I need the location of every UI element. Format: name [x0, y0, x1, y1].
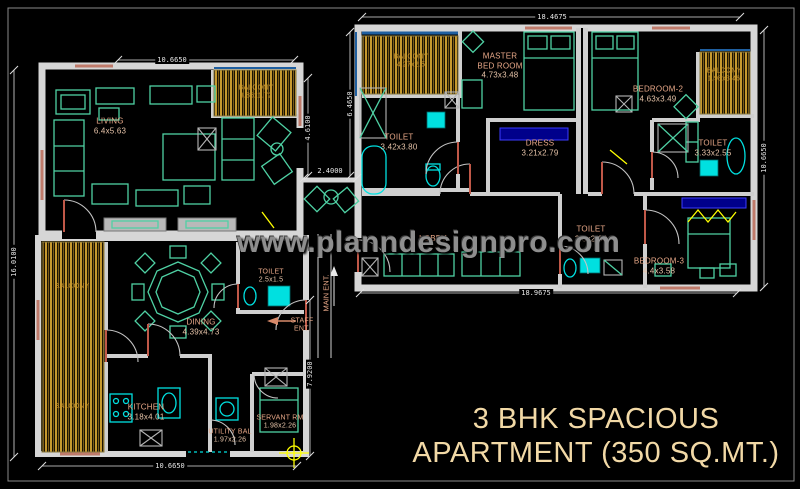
- living-storage: [104, 218, 236, 231]
- floorplan-canvas: LIVING 6.4x5.63 BALCONY 3.86x1.72 BALCON…: [0, 0, 800, 489]
- dim-left-total-height: 16.0100: [10, 245, 18, 279]
- room-label-living-balcony: BALCONY 3.86x1.72: [239, 85, 274, 102]
- room-label-side-balcony-lower: BALCONY: [55, 403, 90, 411]
- room-label-servant-room: SERVANT RM 1.98x2.26: [256, 415, 303, 432]
- dim-upper-block-left-height: 6.4650: [346, 89, 354, 118]
- master-cabinet: [462, 80, 482, 108]
- dim-lower-block-right-height: 7.9200: [306, 359, 314, 388]
- watermark-text: www.planndesignpro.com: [237, 226, 620, 260]
- room-label-dining: DINING 4.39x4.73: [183, 317, 220, 336]
- room-label-utility-balcony: UTILITY BAL 1.97x2.26: [208, 429, 251, 446]
- master-bed: [524, 32, 574, 110]
- master-decor-diamond: [462, 31, 483, 52]
- room-label-bedroom3: BEDROOM-3 4.4x3.58: [634, 256, 684, 275]
- room-label-bedroom2: BEDROOM-2 4.63x3.49: [633, 84, 683, 103]
- dim-lower-block-width: 10.6650: [153, 462, 187, 470]
- courtyard-seats: [304, 186, 358, 212]
- dining-toilet-fixtures: [244, 286, 290, 306]
- bedroom2-bed: [592, 32, 638, 110]
- room-label-master-bedroom: MASTER BED ROOM 4.73x3.48: [474, 52, 526, 81]
- room-label-bedroom2-toilet: TOILET 3.33x2.55: [695, 138, 732, 157]
- room-label-living: LIVING 6.4x5.63: [94, 116, 126, 135]
- room-label-dining-toilet: TOILET 2.5x1.5: [258, 269, 284, 286]
- room-label-side-balcony-upper: BALCONY: [55, 283, 90, 291]
- dim-living-width: 10.6650: [155, 56, 189, 64]
- drawing-title: 3 BHK SPACIOUS APARTMENT (350 SQ.MT.): [400, 402, 792, 470]
- bedroom3-toilet-fixtures: [564, 258, 622, 277]
- dim-upper-block-right-height: 10.6650: [760, 141, 768, 175]
- dim-upper-block-bottom-width: 18.9675: [519, 289, 553, 297]
- dim-passage-width: 2.4000: [315, 167, 344, 175]
- room-label-bedroom2-balcony: BALCONY 1.98x3.46: [707, 68, 742, 85]
- drawing-title-line2: APARTMENT (350 SQ.MT.): [400, 436, 792, 470]
- room-label-dress: DRESS 3.21x2.79: [522, 138, 559, 157]
- drawing-title-line1: 3 BHK SPACIOUS: [400, 402, 792, 436]
- room-label-master-toilet: TOILET 3.42x3.80: [381, 132, 418, 151]
- staff-entrance-label: STAFF ENT.: [284, 318, 320, 335]
- room-label-master-balcony: BALCONY 4.27x2.5: [394, 54, 429, 71]
- main-entrance-label: MAIN ENT.: [322, 272, 331, 313]
- dim-upper-block-width: 18.4675: [535, 13, 569, 21]
- dim-living-right-height: 4.6100: [304, 113, 312, 142]
- room-label-kitchen: KITCHEN 3.18x4.01: [128, 402, 165, 421]
